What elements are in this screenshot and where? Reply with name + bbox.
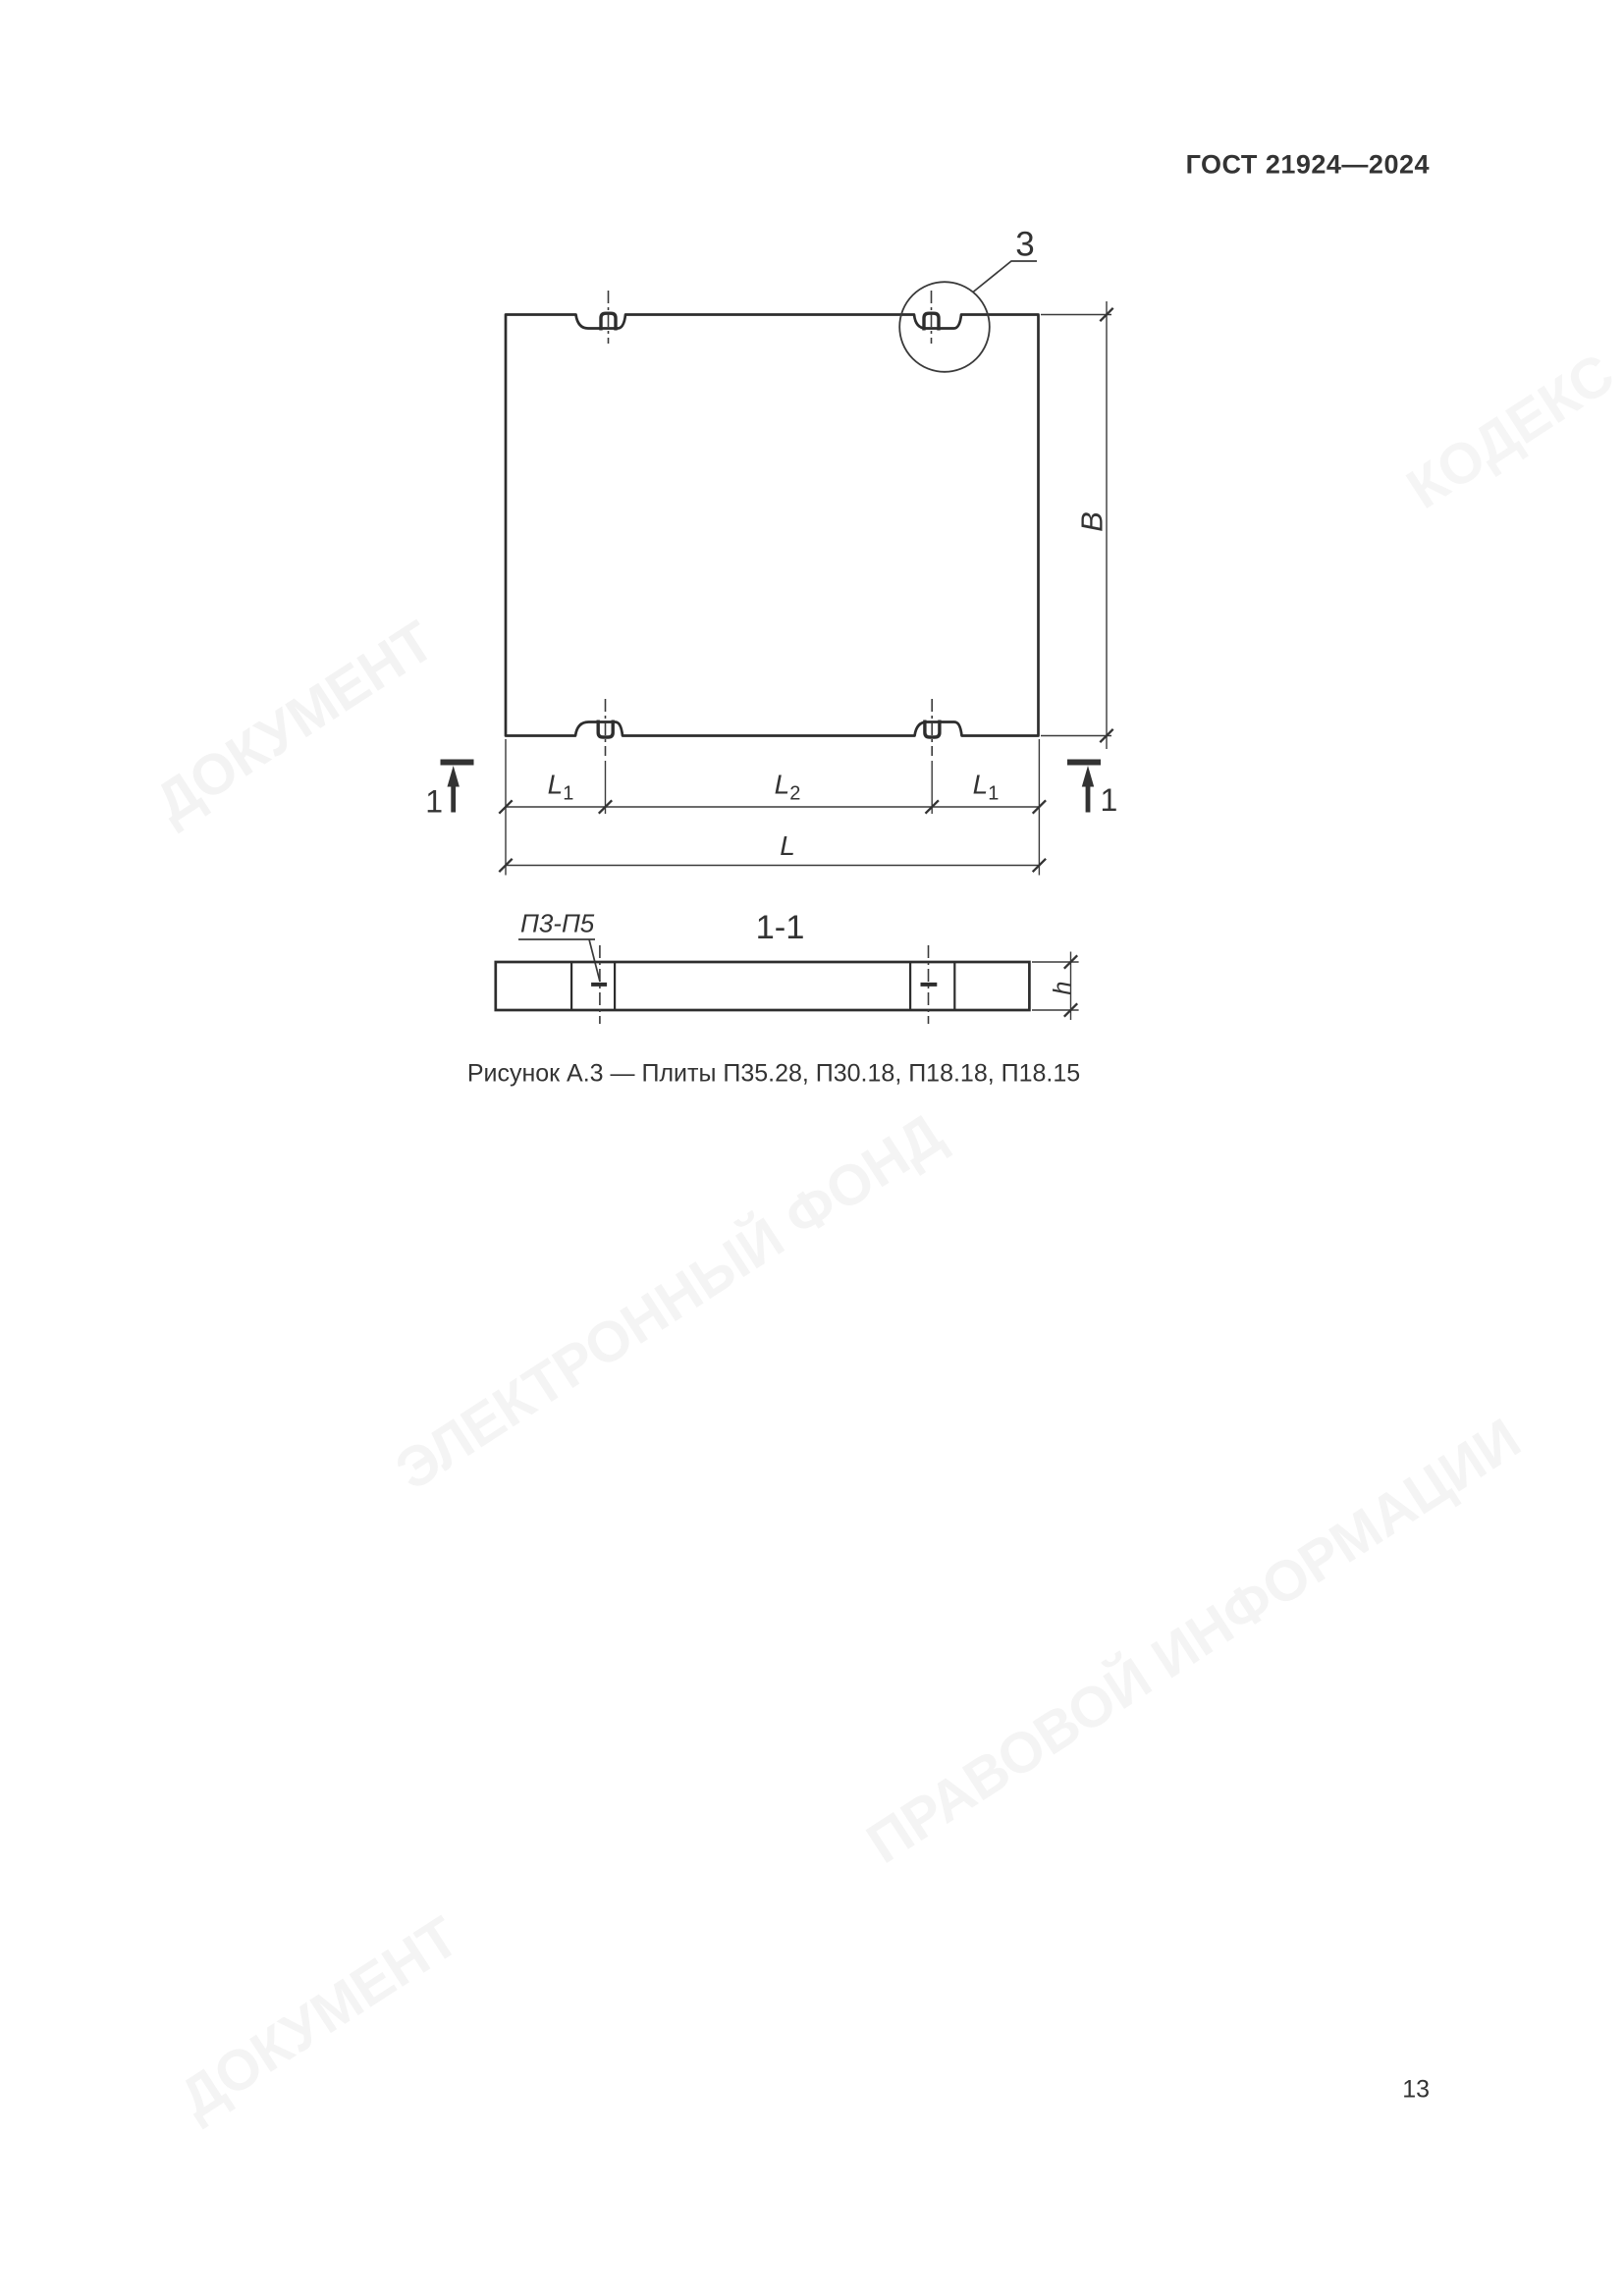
svg-text:L: L [780, 830, 795, 861]
svg-text:13: 13 [1402, 2076, 1430, 2104]
svg-text:B: B [1075, 511, 1110, 532]
svg-text:1: 1 [1101, 782, 1118, 818]
svg-text:П3-П5: П3-П5 [520, 909, 595, 938]
svg-text:1-1: 1-1 [756, 909, 805, 946]
svg-text:ГОСТ 21924—2024: ГОСТ 21924—2024 [1186, 150, 1430, 180]
svg-text:Рисунок А.3 — Плиты П35.28, П3: Рисунок А.3 — Плиты П35.28, П30.18, П18.… [467, 1060, 1080, 1088]
svg-text:1: 1 [425, 784, 443, 820]
svg-text:h: h [1049, 982, 1076, 995]
svg-text:3: 3 [1015, 226, 1034, 264]
